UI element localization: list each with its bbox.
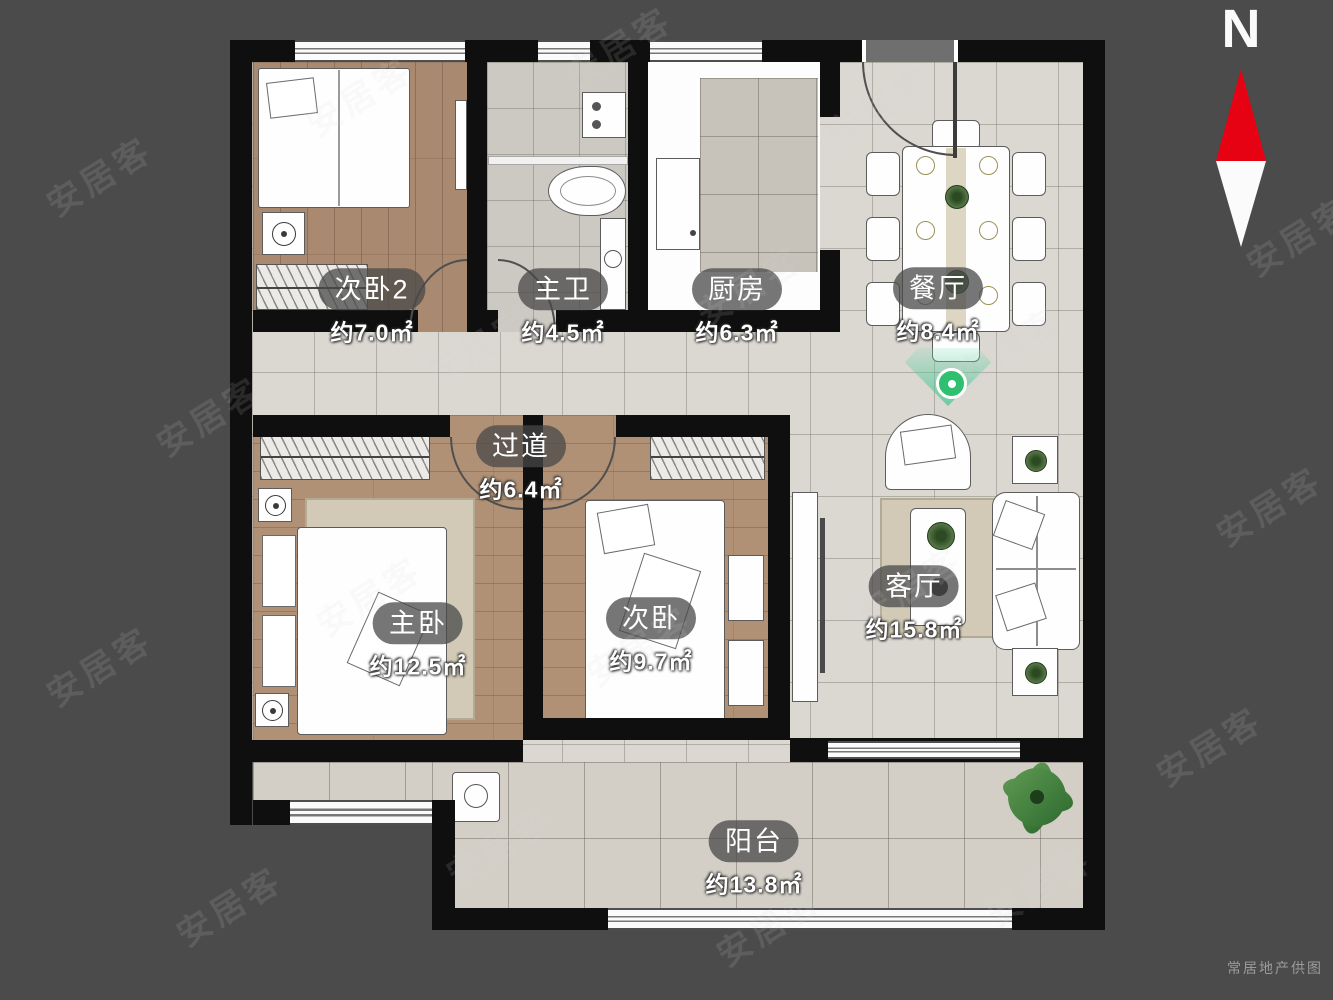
window (650, 40, 762, 62)
nightstand-target-icon (265, 495, 286, 516)
wall-segment (523, 718, 790, 740)
plate (916, 221, 935, 240)
room-label-dining: 餐厅 约8.4㎡ (893, 267, 983, 346)
room-name: 餐厅 (893, 267, 983, 309)
wall-segment (253, 415, 450, 437)
entry-door-leaf (953, 62, 957, 158)
nightstand (728, 555, 764, 621)
potted-plant (1025, 450, 1047, 472)
room-name: 次卧2 (318, 268, 425, 310)
pillow (266, 77, 318, 119)
potted-plant (1025, 662, 1047, 684)
dining-chair (1012, 282, 1046, 326)
nightstand (728, 640, 764, 706)
wall-segment (1083, 40, 1105, 930)
bathtub-inner (560, 176, 616, 206)
pillow (900, 425, 956, 466)
room-area: 约6.4㎡ (480, 471, 563, 505)
room-label-balcony: 阳台 约13.8㎡ (706, 820, 803, 899)
room-name: 主卧 (373, 602, 463, 644)
room-area: 约15.8㎡ (866, 611, 963, 645)
room-label-master: 主卧 约12.5㎡ (370, 602, 467, 681)
washer-door (464, 784, 488, 808)
anjuke-watermark: 安居客 (36, 613, 161, 717)
wardrobe (650, 432, 765, 480)
room-name: 次卧 (606, 597, 696, 639)
sliding-window (828, 741, 1020, 759)
tv (820, 518, 825, 673)
north-compass: N (1204, 0, 1278, 247)
window (608, 908, 1012, 930)
plate (916, 156, 935, 175)
room-area: 约6.3㎡ (696, 314, 779, 348)
tv-cabinet (792, 492, 818, 702)
window (295, 40, 465, 62)
dining-chair (1012, 217, 1046, 261)
dining-chair (866, 217, 900, 261)
basin (604, 250, 622, 268)
dining-chair (866, 152, 900, 196)
table-plant (927, 522, 955, 550)
kitchen-tile-patch (700, 78, 818, 272)
room-label-bedroom: 次卧 约9.7㎡ (606, 597, 696, 676)
stove (656, 158, 700, 250)
dining-chair (1012, 152, 1046, 196)
compass-north-arrow (1216, 69, 1266, 161)
room-area: 约4.5㎡ (522, 314, 605, 348)
window (290, 800, 432, 825)
wall-segment (820, 62, 840, 117)
room-label-hallway: 过道 约6.4㎡ (476, 425, 566, 504)
floorplan-page: { "compass": { "label": "N" }, "watermar… (0, 0, 1333, 1000)
location-marker-pin (936, 368, 967, 399)
room-area: 约13.8㎡ (706, 866, 803, 900)
anjuke-watermark: 安居客 (1206, 453, 1331, 557)
room-label-bedroom2: 次卧2 约7.0㎡ (318, 268, 425, 347)
glass-divider (488, 156, 628, 165)
side-table (455, 100, 467, 190)
room-label-bathroom: 主卫 约4.5㎡ (518, 268, 608, 347)
anjuke-watermark: 安居客 (36, 123, 161, 227)
plate (979, 221, 998, 240)
pillow (262, 535, 296, 607)
plate (979, 156, 998, 175)
wall-segment (768, 415, 790, 740)
sofa-seam (996, 568, 1076, 570)
room-name: 阳台 (709, 820, 799, 862)
room-area: 约7.0㎡ (331, 314, 414, 348)
balcony-alcove-floor (253, 762, 432, 800)
room-name: 过道 (476, 425, 566, 467)
wall-segment (230, 40, 252, 762)
compass-south-arrow (1216, 161, 1266, 247)
wall-segment (230, 740, 523, 762)
provider-credit: 常居地产供图 (1227, 958, 1323, 978)
balcony-plant-center (1030, 790, 1044, 804)
wall-segment (616, 415, 790, 437)
wall-segment (467, 310, 498, 332)
anjuke-watermark: 安居客 (1146, 693, 1271, 797)
room-label-living: 客厅 约15.8㎡ (866, 565, 963, 644)
room-area: 约12.5㎡ (370, 648, 467, 682)
faucet-dot (592, 102, 601, 111)
room-area: 约9.7㎡ (610, 643, 693, 677)
table-centerpiece (945, 185, 969, 209)
room-label-kitchen: 厨房 约6.3㎡ (692, 268, 782, 347)
stove-knob (690, 230, 696, 236)
wardrobe (260, 432, 430, 480)
pillow (597, 504, 656, 554)
room-area: 约8.4㎡ (897, 313, 980, 347)
nightstand-target-icon (272, 222, 296, 246)
north-label: N (1222, 0, 1261, 59)
entry-threshold (862, 40, 958, 62)
wall-segment (467, 62, 487, 332)
room-name: 主卫 (518, 268, 608, 310)
room-name: 厨房 (692, 268, 782, 310)
faucet-dot (592, 120, 601, 129)
pillow (262, 615, 296, 687)
wall-segment (628, 62, 648, 332)
bathroom-sink (582, 92, 626, 138)
floorplan: 次卧2 约7.0㎡ 主卫 约4.5㎡ 厨房 约6.3㎡ 餐厅 约8.4㎡ 过道 … (230, 40, 1105, 930)
window (538, 40, 590, 62)
bed-fold-line (338, 70, 340, 206)
nightstand-target-icon (262, 700, 283, 721)
room-name: 客厅 (869, 565, 959, 607)
